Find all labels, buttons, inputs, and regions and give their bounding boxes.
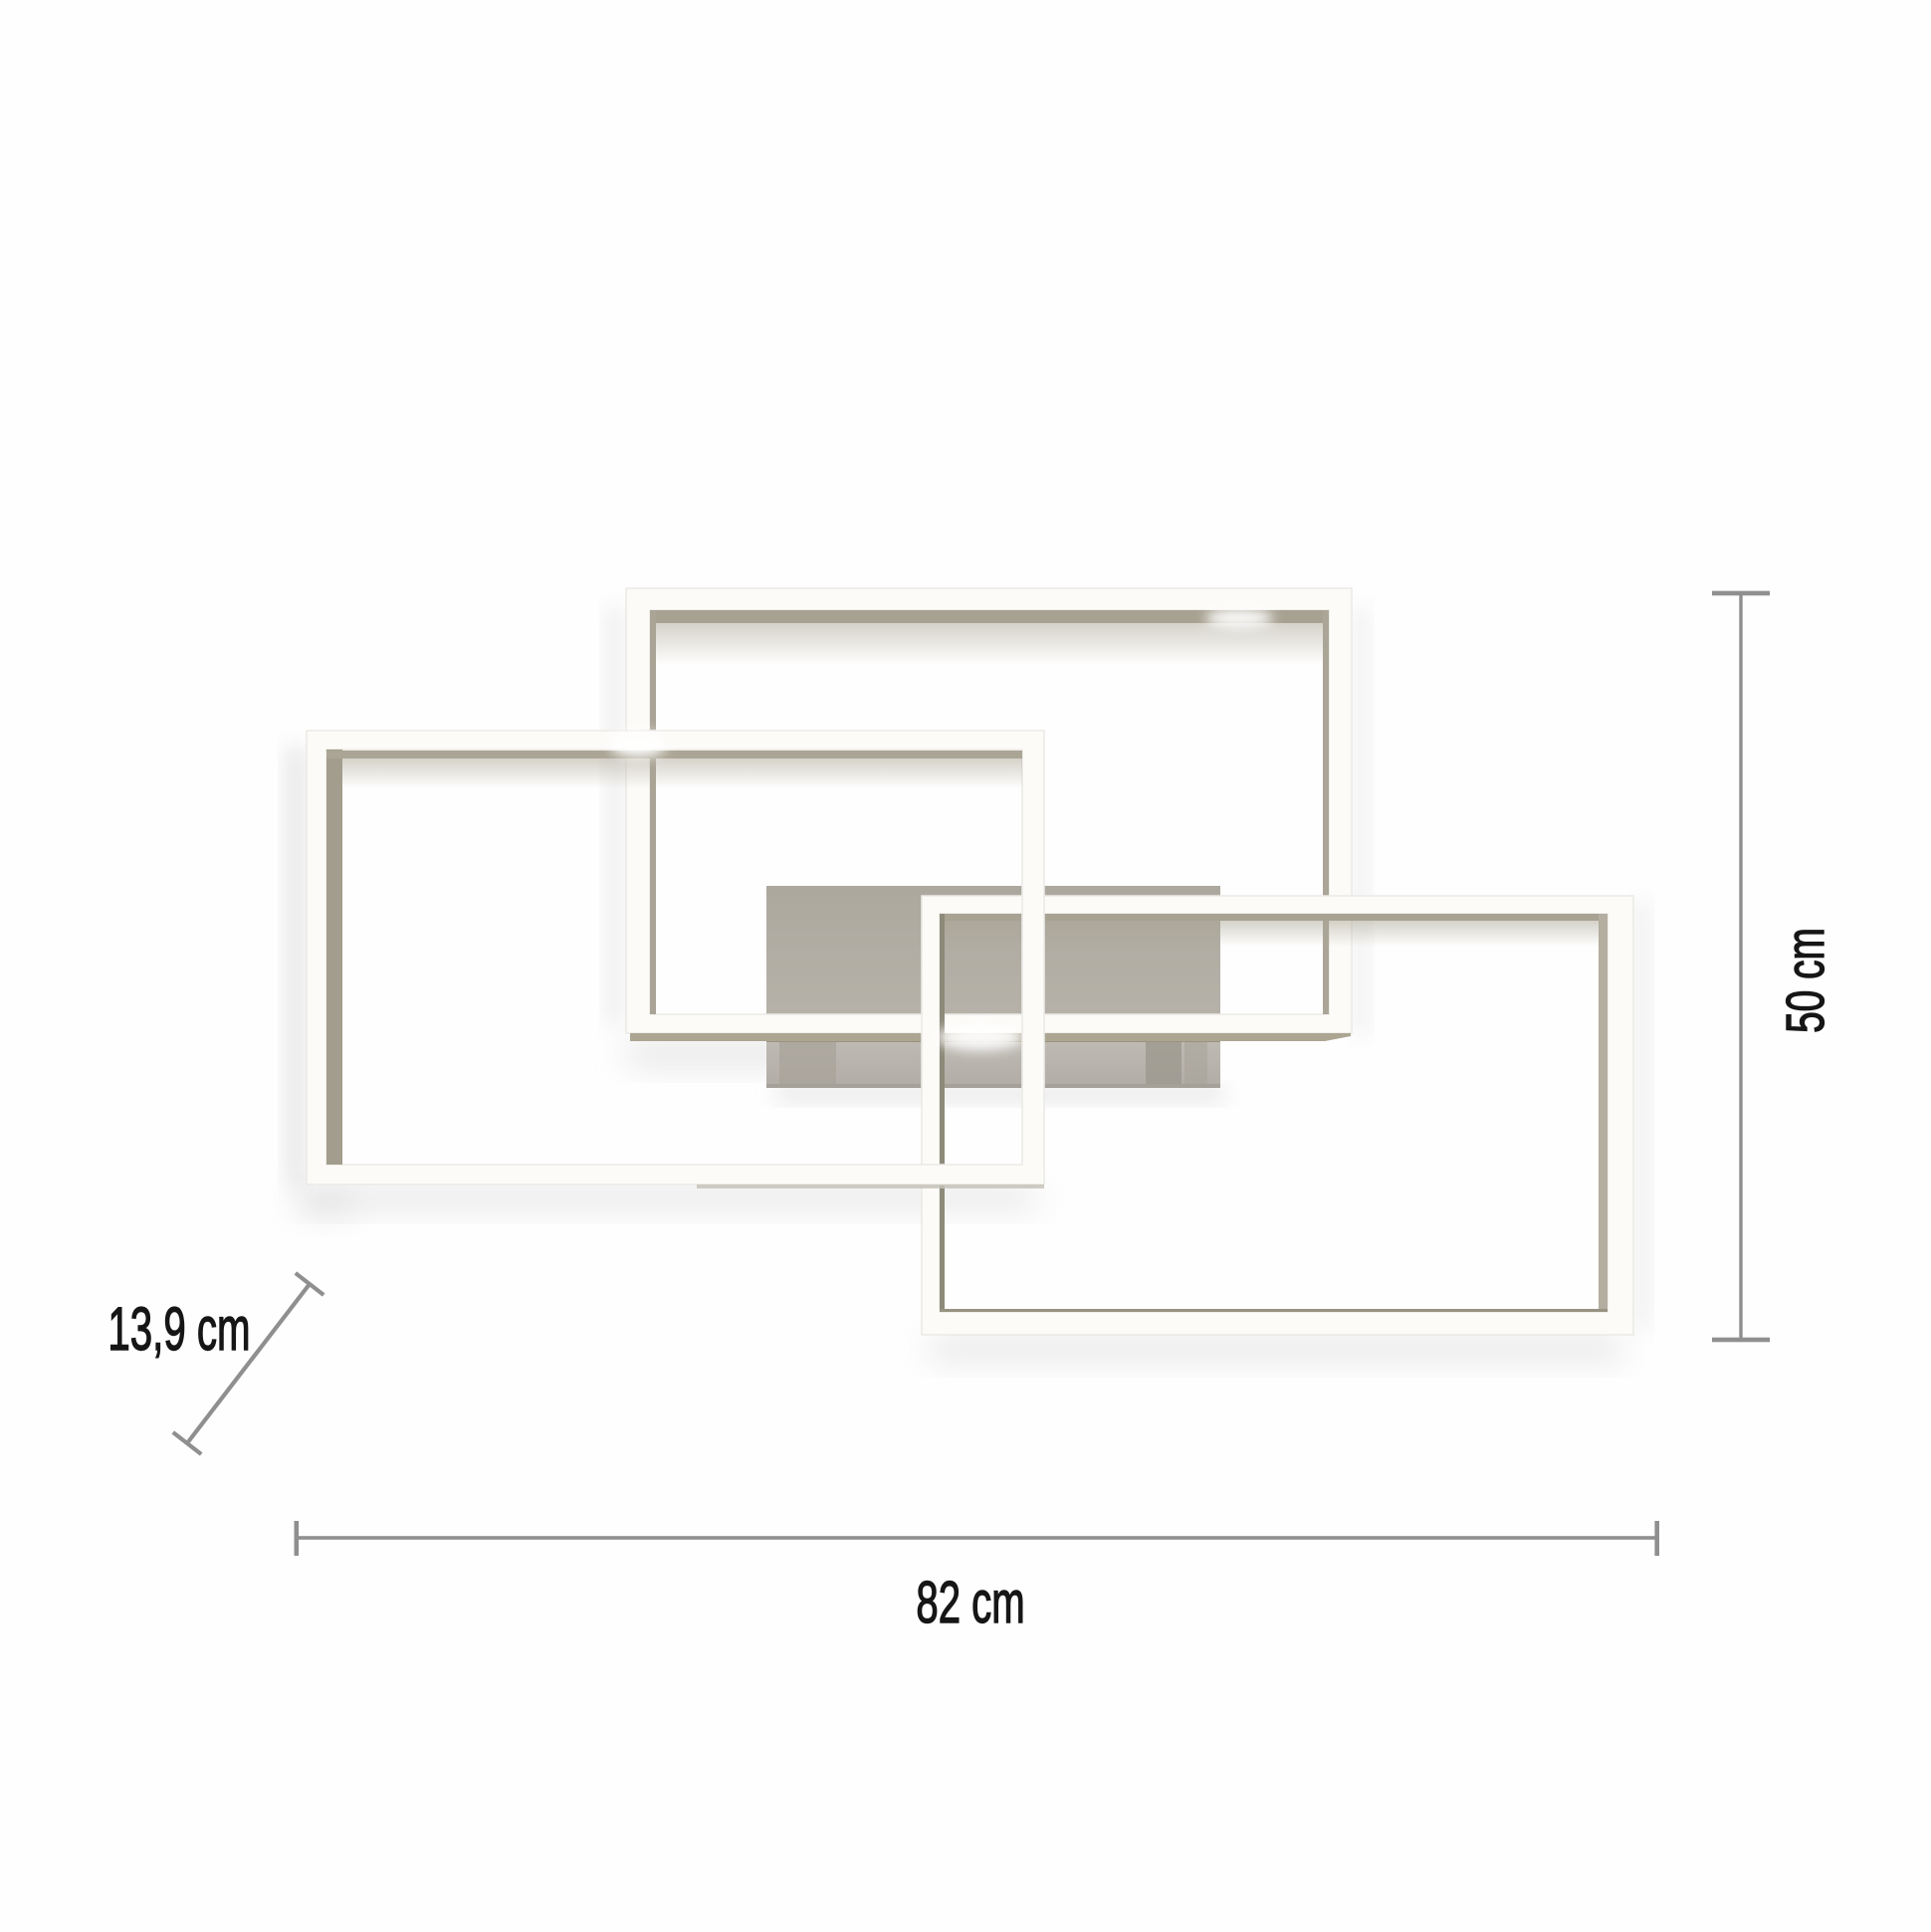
svg-text:50 cm: 50 cm [1775,928,1835,1033]
svg-text:82 cm: 82 cm [916,1569,1024,1635]
svg-text:13,9 cm: 13,9 cm [107,1295,250,1363]
